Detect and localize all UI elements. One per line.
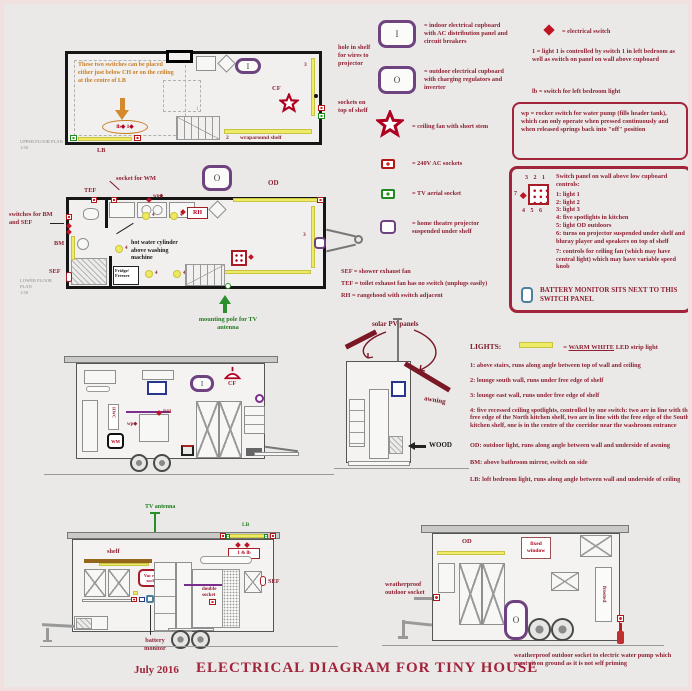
wp-note-box: wp = rocker switch for water pump (fills… [512,102,688,160]
swatch-warm-white: WARM WHITE [569,344,615,351]
ground-line [334,468,469,469]
hwc-cylinder: HWC [108,404,119,430]
weatherproof-socket-label: weatherproof outdoor socket [385,581,429,597]
spotlight-number: 4 [180,213,183,219]
hole-note: hole in shelf for wires to projector [338,44,376,68]
diagram-canvas: These two switches can be placed either … [0,0,692,691]
switches-bm-sef-label: switches for BM and SEF [9,211,61,227]
legend-indoor-cupboard-text: = indoor electrical cupboard with AC dis… [424,22,510,46]
ac-socket-icon [134,135,141,141]
loft-window [166,50,193,63]
caption-text: UPPER FLOOR PLAN [20,139,63,144]
tef-label: TEF [84,187,96,195]
indoor-cupboard-box: I [235,58,261,74]
green-arrow-stem [223,303,227,313]
caption-text: LOWER FLOOR PLAN [20,278,52,289]
antenna-note: mounting pole for TV antenna [197,316,259,331]
stairs [185,264,225,286]
wm-socket-icon [111,197,117,203]
panel-bottom-numbers: 4 5 6 [522,208,544,216]
frosted-window: frosted [595,567,612,622]
od-label: OD [268,179,279,188]
legend-tv-socket-icon [381,189,395,199]
legend-note-lb: lb = switch for left bedroom light [532,88,682,96]
legend-projector-icon [380,220,396,234]
purple-ring-fixture [255,394,264,403]
fixed-window-box: fixed window [521,537,551,559]
ac-socket-icon [317,197,324,203]
swatch-eq: = [563,344,567,351]
spotlight-number: 4 [125,246,128,252]
spotlight-marker [142,212,150,220]
legend-ceiling-fan-icon [376,110,404,138]
switches-pointer [50,223,64,224]
ground-line [382,645,664,646]
bathroom-door [82,400,98,452]
tv-antenna-pole [154,512,156,534]
tv-socket-icon [264,534,268,539]
lights-item: LB: loft bedroom light, runs along angle… [470,476,692,484]
stairs [176,116,220,140]
lights-block: LIGHTS: = WARM WHITE LED strip light 1: … [470,336,692,484]
lights-item: 4: five recessed ceiling spotlights, con… [470,407,692,431]
legend-240v-socket-icon [381,159,395,169]
panel-top-numbers: 3 2 1 [525,175,547,183]
kitchen-fixture [196,56,216,71]
ac-socket-icon [270,533,276,539]
cf-label: CF [228,381,236,389]
entry-door [482,563,505,625]
led-strip-2 [224,129,312,134]
stove-box [181,445,194,456]
fridge-box: Fridge/ Freezer [113,266,139,285]
lower-floor-plan: RH Fridge/ Freezer hot water cylinder ab… [66,197,326,289]
lights-item: OD: outdoor light, runs along angle betw… [470,442,692,450]
battery-monitor-icon [521,287,533,303]
jack-foot [43,640,52,642]
wood-label: WOOD [429,441,452,450]
lights-item: 3: lounge east wall, runs under free edg… [470,392,692,400]
legend-ceiling-fan-text: = ceiling fan with short stem [412,123,504,131]
od-led-strip [233,198,319,202]
spotlight-marker [115,245,123,253]
strip-2-number: 2 [226,135,229,142]
trailer-base [348,461,410,466]
wheel [153,454,171,472]
lb-led-strip [78,137,132,141]
antenna-pole-mount [225,283,231,289]
caption-scale: 1:50 [20,290,28,295]
cabinet [154,562,176,632]
panel-item: 6: turns on projector suspended under sh… [556,230,688,246]
jockey-wheel [402,620,405,636]
ac-socket-icon [318,105,325,111]
lights-item: BM: above bathroom mirror, switch on sid… [470,459,692,467]
lights-heading: LIGHTS: [470,342,501,351]
window [108,569,130,597]
cabinet [176,562,192,632]
ac-socket-icon [131,597,137,602]
legend-240v-text: = 240V AC sockets [412,160,504,168]
legend-note-light1: 1 = light 1 is controlled by switch 1 in… [532,48,682,64]
legend-switch-icon [543,24,554,35]
wheel [130,454,148,472]
panel-item: 7: controls for ceiling fan (which may h… [556,248,688,272]
end-window [391,381,406,397]
shelf-led-strip [99,563,149,566]
spotlight-marker [145,270,153,278]
legend-indoor-cupboard-icon: I [378,20,416,48]
panel-left-number: 7 [514,191,517,199]
water-pump [617,631,624,644]
switch-panel-icon [231,250,247,266]
window [551,572,579,591]
battery-monitor-icon [146,595,154,603]
storage-box [76,618,92,629]
led-strip-3 [311,58,315,116]
legend-tv-text: = TV aerial socket [412,190,504,198]
entry-door [459,563,482,625]
panel-heading: Switch panel on wall above low cupboard … [556,173,688,189]
panel-item: 2: light 2 [556,199,688,207]
roof [421,525,629,533]
rh-label: RH [163,409,171,416]
pump-socket-icon [617,615,624,622]
hwc-note: hot water cylinder above washing machine [131,240,187,263]
spotlight-number: 4 [152,213,155,219]
shelf-box [142,370,174,380]
pointer-arrow [414,597,432,600]
wheel [528,618,551,641]
od-led-strip [437,551,505,555]
jack-foot [398,636,408,639]
spotlight-marker [173,270,181,278]
strip-3-number: 3 [304,62,307,69]
ground-line [40,646,338,647]
ceiling-fan-icon [223,366,242,380]
orange-arrow-head [115,110,129,120]
washing-machine [109,202,135,218]
loft-window [84,370,116,384]
hitch-coupler [354,235,363,244]
led-strip-2 [217,270,311,274]
loft-mattress [200,556,252,564]
sink-fixture [217,54,235,72]
wheel [551,618,574,641]
switch-panel-icon [528,184,549,205]
lb-label: LB [242,522,249,529]
tef-socket-icon [91,197,97,203]
caption-scale: 1:50 [20,145,28,150]
wood-stove [389,436,403,454]
tv-antenna-label: TV antenna [145,504,175,511]
battery-monitor-label: battery monitor [134,637,176,653]
tv-socket-icon [70,135,77,141]
frosted-label: frosted [600,586,607,602]
legend-projector-text: = home theatre projector suspended under… [412,220,507,236]
window [580,535,612,557]
window-sill [82,599,132,602]
small-strip [133,591,138,595]
ac-socket-icon [209,599,216,605]
ac-socket-icon [66,214,72,220]
tv-antenna-tee [150,512,160,514]
lights-heading-row: LIGHTS: = WARM WHITE LED strip light [470,336,692,354]
lower-plan-caption: LOWER FLOOR PLAN 1:50 [20,278,64,296]
legend-outdoor-cupboard-icon: O [378,66,416,94]
rangehood-box: RH [187,207,208,219]
wp-label: wp◆ [127,422,137,428]
window [84,569,106,597]
panel-item: 1: light 1 [556,191,688,199]
wire-hole [314,94,318,98]
tv-socket-icon [226,534,230,539]
battery-pointer-line [150,605,151,635]
loft-switch-note: These two switches can be placed either … [78,62,174,85]
od-label: OD [462,538,472,546]
kitchen-hutch [139,414,169,442]
ground-line [44,474,334,475]
wardrobe-door [219,401,242,458]
battery-monitor-note: BATTERY MONITOR SITS NEXT TO THIS SWITCH… [540,286,690,304]
curtain-door [222,569,240,628]
switch-icon [66,229,72,235]
shelving [349,399,365,447]
sockets-note: sockets on top of shelf [338,99,374,115]
blue-socket-icon [139,597,145,602]
cf-label: CF [272,85,281,93]
shelf-label: shelf [107,548,120,556]
jockey-wheel [46,628,49,640]
shelf-bar [84,559,152,563]
wood-arrow-head [408,442,415,450]
sef-definition: SEF = shower exhaust fan [341,268,511,276]
switch-panel-box: 3 2 1 7 4 5 6 Switch panel on wall above… [509,166,692,313]
sef-label: SEF [49,268,61,276]
wardrobe-area [163,80,201,112]
shower [71,258,107,285]
stove-fixture [208,200,226,218]
lights-item: 1: above stairs, runs along angle betwee… [470,362,692,370]
indoor-cupboard-box: I [190,375,214,392]
spotlight-number: 4 [155,271,158,277]
tv-socket-icon [318,113,325,119]
trailer-frame [254,452,299,456]
panel-item: 4: five spotlights in kitchen [556,214,688,222]
bm-led-strip [71,236,75,260]
hitch-bar [326,244,356,252]
interior-door [369,389,389,459]
hwc-label: HWC [111,407,117,418]
washing-machine-box: WM [107,433,124,449]
title-date: July 2016 [134,664,179,676]
spotlight-marker [170,212,178,220]
swatch-rest: LED strip light [616,344,658,351]
strip-3-number: 3 [303,232,306,239]
rh-definition: RH = rangehood with switch adjacent [341,292,511,300]
toilet [83,208,99,220]
narrow-window [438,563,455,593]
led-strip-swatch [519,342,553,348]
hwc-pointer [116,223,134,235]
bathroom-wall [105,200,108,228]
bathroom-sink [77,238,89,250]
pump-cable [620,623,622,631]
switch-icon [248,254,254,260]
weatherproof-socket-icon [433,594,440,601]
wraparound-shelf-label: wraparound shelf [240,135,282,142]
shelving [244,406,265,434]
panel-item: 3: light 3 [556,206,688,214]
lb-led-strip [228,534,266,538]
tv-screen [147,381,167,395]
wardrobe-door [196,401,219,458]
switch-icon [520,192,526,198]
projector-icon [314,237,326,249]
loft-plan-caption: UPPER FLOOR PLAN 1:50 [20,139,64,151]
sef-fan-icon [66,272,72,282]
roof [64,356,278,363]
switch-icon [66,223,72,229]
outdoor-cupboard-box: O [202,165,232,191]
sef-label: SEF [268,578,280,586]
loft-floor-plan: These two switches can be placed either … [65,51,322,145]
lights-item: 2: lounge south wall, runs under free ed… [470,377,692,385]
tef-definition: TEF = toilet exhaust fan has no switch (… [341,280,521,288]
hitch-bar [326,229,356,237]
sef-fan-icon [260,576,266,586]
legend-switch-text: = electrical switch [562,28,662,36]
panel-item: 5: light OD outdoors [556,222,688,230]
legend-outdoor-cupboard-text: = outdoor electrical cupboard with charg… [424,68,510,92]
ceiling-fan-icon [279,93,299,113]
wp-note-text: wp = rocker switch for water pump (fills… [521,110,681,134]
wp-label: wp◆ [153,194,163,200]
pillow [86,386,110,392]
lb-label: LB [97,147,105,155]
bm-label: BM [54,240,64,248]
socket-wm-label: socket for WM [116,175,156,183]
panel-text-column: Switch panel on wall above low cupboard … [556,173,688,271]
tow-bar [402,620,432,626]
wood-arrow-stem [415,445,426,448]
outdoor-cupboard-box: O [504,600,528,640]
shower-wall [109,256,112,286]
page-title: ELECTRICAL DIAGRAM FOR TINY HOUSE [196,660,538,677]
loft-switch-oval: lb◆ 1◆ [102,120,148,134]
